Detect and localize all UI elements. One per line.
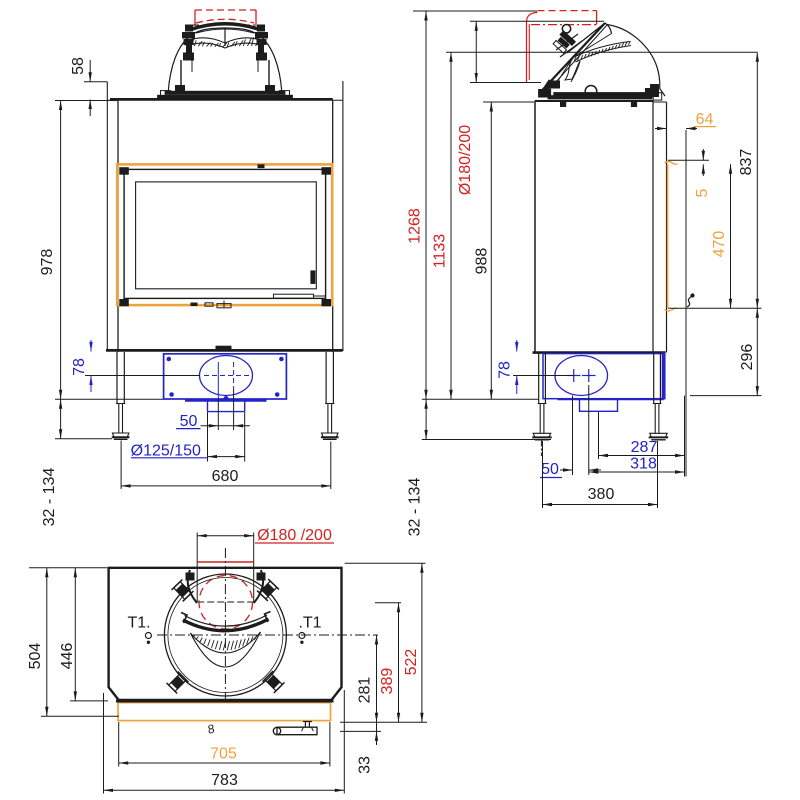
svg-text:978: 978 (39, 249, 56, 276)
svg-text:50: 50 (180, 413, 198, 430)
svg-text:504: 504 (27, 643, 44, 670)
svg-text:470: 470 (711, 231, 728, 258)
svg-text:281: 281 (357, 677, 374, 704)
svg-text:680: 680 (212, 468, 239, 485)
svg-text:380: 380 (588, 486, 615, 503)
svg-text:T1.: T1. (127, 615, 150, 632)
svg-text:837: 837 (738, 149, 755, 176)
svg-text:32 - 134: 32 - 134 (407, 478, 424, 537)
svg-text:64: 64 (696, 111, 714, 128)
svg-text:Ø180/200: Ø180/200 (457, 125, 474, 195)
svg-text:32 - 134: 32 - 134 (41, 468, 58, 527)
svg-text:522: 522 (403, 649, 420, 676)
svg-text:.T1: .T1 (298, 615, 321, 632)
svg-text:1133: 1133 (432, 234, 449, 269)
svg-text:78: 78 (497, 361, 514, 379)
svg-text:389: 389 (379, 668, 396, 695)
svg-text:988: 988 (474, 248, 491, 275)
svg-text:33: 33 (357, 756, 374, 774)
svg-text:58: 58 (70, 57, 87, 75)
svg-text:446: 446 (59, 643, 76, 670)
svg-text:50: 50 (541, 461, 559, 478)
svg-text:78: 78 (71, 358, 88, 376)
svg-text:783: 783 (211, 772, 238, 789)
svg-text:287: 287 (631, 439, 658, 456)
svg-text:705: 705 (210, 746, 237, 763)
svg-text:296: 296 (739, 344, 756, 371)
svg-text:Ø125/150: Ø125/150 (131, 443, 201, 460)
svg-text:318: 318 (630, 456, 657, 473)
svg-text:1268: 1268 (407, 208, 424, 244)
svg-text:Ø180 /200: Ø180 /200 (257, 527, 332, 544)
svg-text:5: 5 (694, 188, 711, 197)
